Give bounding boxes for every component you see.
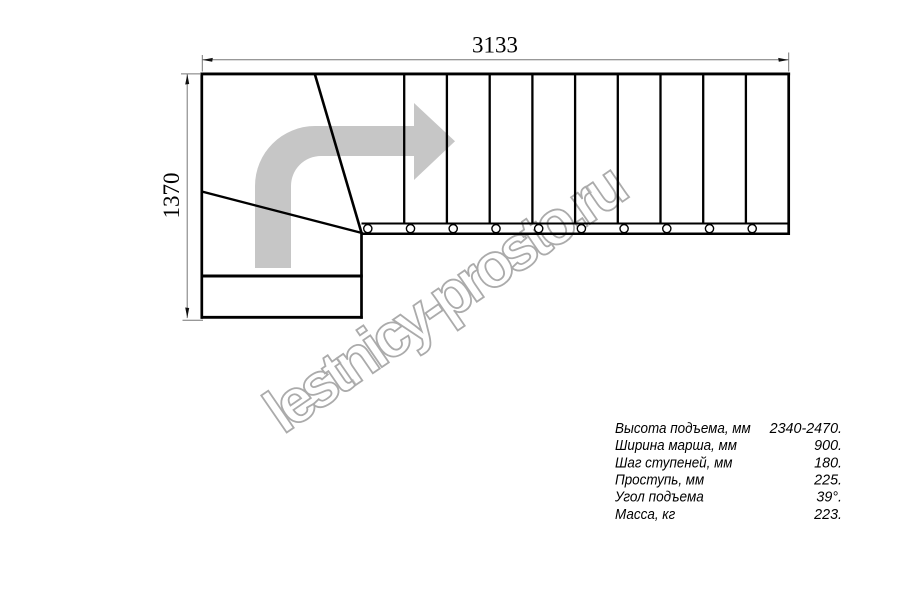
svg-text:Шаг ступеней, мм: Шаг ступеней, мм (615, 455, 733, 471)
svg-text:180.: 180. (814, 455, 842, 471)
svg-text:Масса, кг: Масса, кг (615, 507, 675, 523)
svg-text:225.: 225. (813, 473, 842, 489)
svg-text:2340-2470.: 2340-2470. (769, 421, 842, 437)
svg-text:39°.: 39°. (816, 490, 842, 506)
svg-text:223.: 223. (813, 507, 842, 523)
svg-text:Ширина марша, мм: Ширина марша, мм (615, 438, 737, 454)
svg-text:Угол подъема: Угол подъема (614, 490, 704, 506)
svg-text:900.: 900. (814, 438, 842, 454)
svg-text:3133: 3133 (472, 33, 518, 58)
svg-text:1370: 1370 (159, 173, 184, 219)
svg-text:Высота подъема, мм: Высота подъема, мм (615, 421, 751, 437)
svg-text:Проступь, мм: Проступь, мм (615, 473, 704, 489)
